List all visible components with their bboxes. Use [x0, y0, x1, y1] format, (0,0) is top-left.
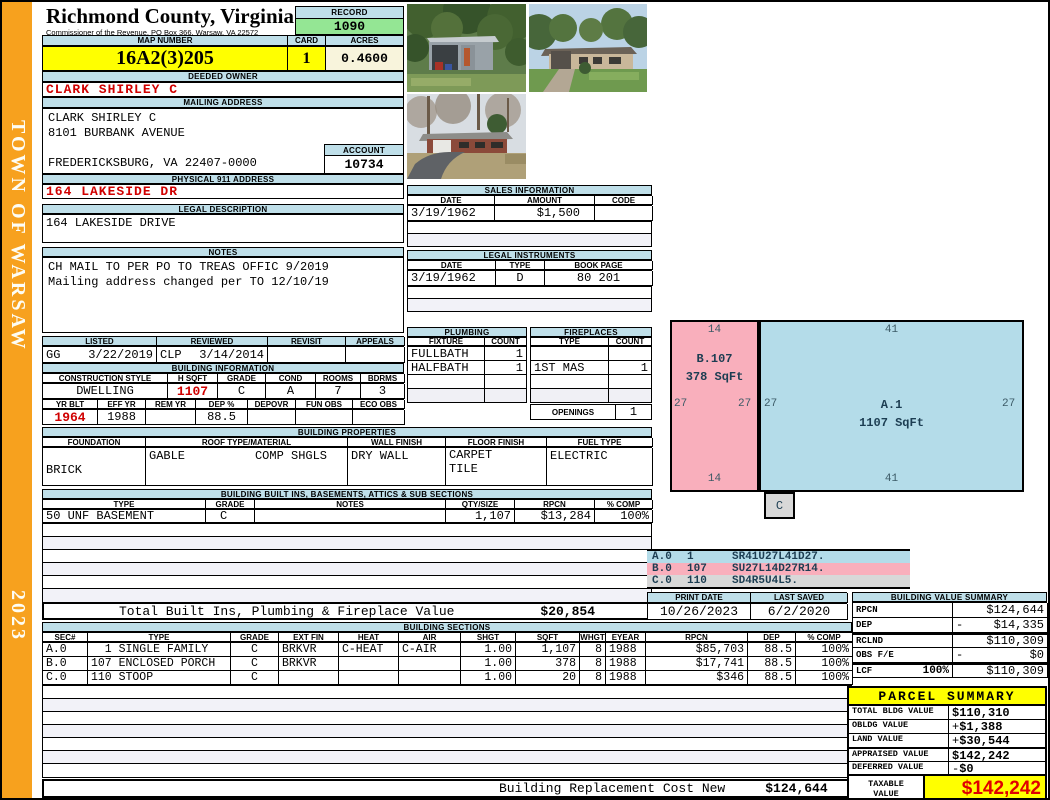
fireplace-2-count: 1 [609, 361, 652, 375]
sections-footer-row: Building Replacement Cost New $124,644 [42, 779, 852, 798]
legend-a-num: 1 [687, 551, 732, 563]
bp-header-row: FOUNDATION ROOF TYPE/MATERIAL WALL FINIS… [42, 437, 652, 447]
instruments-empty-rows [407, 286, 652, 312]
row-a-comp: 100% [796, 643, 853, 657]
reviewed-label: REVIEWED [157, 337, 268, 346]
sec-extfin-label: EXT FIN [279, 633, 339, 642]
bvs-title: BUILDING VALUE SUMMARY [852, 592, 1047, 602]
obldg-value: $1,388 [959, 720, 1002, 734]
print-date-label: PRINT DATE [648, 593, 751, 603]
note-line-1: CH MAIL TO PER PO TO TREAS OFFIC 9/2019 [45, 260, 332, 274]
town-name: TOWN OF WARSAW [6, 120, 29, 352]
card-value: 1 [288, 47, 326, 71]
row-a-sec: A.0 [43, 643, 88, 657]
row-a-dep: 88.5 [748, 643, 796, 657]
rooms-value: 7 [316, 384, 361, 399]
sketch-a-bottom-dim: 41 [759, 473, 1024, 485]
note-line-2: Mailing address changed per TO 12/10/19 [45, 275, 332, 289]
sec-whgt-label: WHGT [580, 633, 606, 642]
bvs-lcf-label-cell: LCF100% [853, 663, 953, 678]
card-label: CARD [288, 36, 326, 46]
built-ins-total-value: $20,854 [540, 604, 595, 619]
row-a-heat: C-HEAT [339, 643, 399, 657]
bvs-dep-cell: -$14,335 [953, 618, 1048, 633]
legend-c-code: C.0 [647, 575, 687, 587]
dep-pct-value: 88.5 [196, 410, 248, 425]
bvs-dep-label: DEP [853, 618, 953, 633]
openings-row: OPENINGS 1 [530, 404, 652, 420]
sec-rpcn-label: RPCN [646, 633, 748, 642]
fireplaces-title: FIREPLACES [530, 327, 652, 337]
sec-shgt-label: SHGT [461, 633, 516, 642]
bi-qty-value: 1,107 [446, 510, 515, 523]
ecoobs-value [353, 410, 405, 425]
sales-code-label: CODE [595, 196, 653, 205]
bvs-rclnd-value: $110,309 [986, 634, 1044, 648]
sec-sqft-label: SQFT [516, 633, 580, 642]
mailing-address-label: MAILING ADDRESS [42, 97, 404, 108]
row-b-type: 107 ENCLOSED PORCH [88, 657, 231, 671]
total-bldg-value: $110,310 [952, 706, 1010, 720]
sketch-a-sqft: 1107 SqFt [759, 416, 1024, 430]
inst-bookpage-label: BOOK PAGE [545, 261, 653, 270]
sketch-b-top-dim: 14 [670, 324, 759, 336]
roof-label: ROOF TYPE/MATERIAL [146, 438, 348, 447]
bvs-dep-op: - [956, 618, 963, 632]
sketch-b-label: B.107 [670, 352, 759, 366]
fireplace-1 [531, 347, 609, 361]
built-ins-total-row: Total Built Ins, Plumbing & Fireplace Va… [42, 602, 652, 620]
inst-date-label: DATE [408, 261, 496, 270]
replacement-cost-value: $124,644 [765, 781, 827, 796]
row-a-whgt: 8 [580, 643, 606, 657]
instruments-row: 3/19/1962 D 80 201 [407, 270, 652, 286]
depovr-label: DEPOVR [248, 400, 296, 409]
fixture-label: FIXTURE [408, 338, 485, 346]
row-b-grade: C [231, 657, 279, 671]
row-c-air [399, 671, 461, 685]
bi-qty-label: QTY/SIZE [446, 500, 515, 509]
account-label: ACCOUNT [324, 144, 404, 156]
review-header-row: LISTED REVIEWED REVISIT APPEALS [42, 336, 404, 346]
revisit-value [268, 347, 346, 363]
legend-row-c: C.0110SD4R5U4L5. [647, 575, 910, 587]
map-value-row: 16A2(3)205 1 0.4600 [42, 46, 404, 71]
row-c-type: 110 STOOP [88, 671, 231, 685]
bvs-lcf-value: $110,309 [986, 664, 1044, 678]
account-box: ACCOUNT 10734 [324, 144, 404, 174]
sales-amount-value: $1,500 [495, 206, 595, 221]
county-header: Richmond County, Virginia Commissioner o… [46, 4, 296, 37]
bi-type-label: TYPE [43, 500, 206, 509]
bvs-rclnd-label: RCLND [853, 633, 953, 648]
row-b-comp: 100% [796, 657, 853, 671]
listed-date: 3/22/2019 [88, 348, 153, 362]
appraised-cell: $142,242 [949, 748, 1045, 762]
bi-value-row-2: 1964 1988 88.5 [42, 409, 404, 425]
legend-a-code: A.0 [647, 551, 687, 563]
sales-code-value [595, 206, 653, 221]
bvs-obs-label: OBS F/E [853, 648, 953, 663]
row-a-air: C-AIR [399, 643, 461, 657]
building-sections-title: BUILDING SECTIONS [42, 622, 852, 632]
built-ins-empty-rows [42, 523, 652, 602]
built-ins-row: 50 UNF BASEMENT C 1,107 $13,284 100% [42, 509, 652, 523]
listed-label: LISTED [43, 337, 157, 346]
row-b-sec: B.0 [43, 657, 88, 671]
fireplace-type-label: TYPE [531, 338, 609, 346]
effyr-label: EFF YR [98, 400, 146, 409]
deferred-cell: -$0 [949, 762, 1045, 776]
sec-heat-label: HEAT [339, 633, 399, 642]
appraised-value: $142,242 [952, 749, 1010, 763]
obldg-cell: +$1,388 [949, 720, 1045, 734]
sales-amount-label: AMOUNT [495, 196, 595, 205]
row-c-grade: C [231, 671, 279, 685]
row-b-shgt: 1.00 [461, 657, 516, 671]
bvs-rpcn-label: RPCN [853, 603, 953, 618]
funobs-value [296, 410, 353, 425]
inst-date-value: 3/19/1962 [408, 271, 496, 286]
physical-address-label: PHYSICAL 911 ADDRESS [42, 174, 404, 184]
row-a-type: 1 SINGLE FAMILY [88, 643, 231, 657]
plumbing-rows: FULLBATH 1 HALFBATH 1 [407, 346, 527, 403]
parcel-summary-rows: TOTAL BLDG VALUE $110,310 OBLDG VALUE +$… [849, 706, 1045, 776]
sketch-b-bottom-dim: 14 [670, 473, 759, 485]
mailing-address-box: CLARK SHIRLEY C 8101 BURBANK AVENUE FRED… [42, 108, 404, 174]
rooms-label: ROOMS [316, 374, 361, 383]
sales-row: 3/19/1962 $1,500 [407, 205, 652, 221]
dates-header: PRINT DATE LAST SAVED [647, 592, 847, 603]
cond-label: COND [266, 374, 316, 383]
county-title: Richmond County, Virginia [46, 4, 296, 29]
town-spine: TOWN OF WARSAW 2023 [2, 2, 32, 798]
floor-finish-value: CARPETTILE [446, 448, 547, 486]
print-date-value: 10/26/2023 [648, 604, 751, 620]
bvs-obs-op: - [956, 648, 963, 662]
legend-b-num: 107 [687, 563, 732, 575]
notes-box: CH MAIL TO PER PO TO TREAS OFFIC 9/2019 … [42, 257, 404, 333]
bi-header-row-1: CONSTRUCTION STYLE H SQFT GRADE COND ROO… [42, 373, 404, 383]
depovr-value [248, 410, 296, 425]
map-number-value: 16A2(3)205 [43, 47, 288, 71]
sections-rows: A.0 1 SINGLE FAMILY C BRKVR C-HEAT C-AIR… [42, 642, 852, 685]
floor-finish-1: CARPET [449, 448, 492, 462]
sales-title: SALES INFORMATION [407, 185, 652, 195]
property-record-card: TOWN OF WARSAW 2023 Richmond County, Vir… [0, 0, 1050, 800]
dates-values: 10/26/2023 6/2/2020 [647, 603, 847, 620]
effyr-value: 1988 [98, 410, 146, 425]
tax-year: 2023 [6, 590, 29, 642]
map-number-label: MAP NUMBER [43, 36, 288, 46]
land-cell: +$30,544 [949, 734, 1045, 748]
row-c-rpcn: $346 [646, 671, 748, 685]
taxable-label: TAXABLE VALUE [849, 776, 925, 800]
bdrms-value: 3 [361, 384, 405, 399]
row-a-sqft: 1,107 [516, 643, 580, 657]
building-properties-title: BUILDING PROPERTIES [42, 427, 652, 437]
sketch-a-top-dim: 41 [759, 324, 1024, 336]
revisit-label: REVISIT [268, 337, 346, 346]
sec-air-label: AIR [399, 633, 461, 642]
mailing-line-1: CLARK SHIRLEY C [45, 111, 159, 125]
row-c-dep: 88.5 [748, 671, 796, 685]
bi-comp-value: 100% [595, 510, 653, 523]
row-c-whgt: 8 [580, 671, 606, 685]
last-saved-value: 6/2/2020 [751, 604, 848, 620]
sec-grade-label: GRADE [231, 633, 279, 642]
row-b-heat [339, 657, 399, 671]
fireplace-count-label: COUNT [609, 338, 652, 346]
plumbing-title: PLUMBING [407, 327, 527, 337]
grade-value: C [218, 384, 266, 399]
legend-row-b: B.0107SU27L14D27R14. [647, 563, 910, 575]
total-bldg-label: TOTAL BLDG VALUE [849, 706, 949, 720]
row-a-extfin: BRKVR [279, 643, 339, 657]
taxable-row: TAXABLE VALUE $142,242 [849, 776, 1045, 800]
house-front-photo [529, 4, 647, 92]
row-c-shgt: 1.00 [461, 671, 516, 685]
plumbing-count-label: COUNT [485, 338, 527, 346]
appeals-value [346, 347, 405, 363]
funobs-label: FUN OBS [296, 400, 353, 409]
total-bldg-cell: $110,310 [949, 706, 1045, 720]
record-value: 1090 [295, 19, 404, 35]
remyr-value [146, 410, 196, 425]
deeded-owner-label: DEEDED OWNER [42, 71, 404, 82]
openings-value: 1 [616, 405, 652, 420]
record-box: RECORD 1090 [295, 6, 404, 35]
bi-comp-label: % COMP [595, 500, 653, 509]
remyr-label: REM YR [146, 400, 196, 409]
reviewed-code: CLP [160, 348, 182, 362]
row-b-rpcn: $17,741 [646, 657, 748, 671]
bvs-rclnd-cell: $110,309 [953, 633, 1048, 648]
row-c-sec: C.0 [43, 671, 88, 685]
bvs-lcf-pct: 100% [923, 665, 949, 677]
bp-value-row: BRICK GABLECOMP SHGLS DRY WALL CARPETTIL… [42, 447, 652, 486]
instruments-title: LEGAL INSTRUMENTS [407, 250, 652, 260]
floor-finish-2: TILE [449, 462, 478, 476]
bi-notes-value [255, 510, 446, 523]
obldg-label: OBLDG VALUE [849, 720, 949, 734]
built-ins-title: BUILDING BUILT INS, BASEMENTS, ATTICS & … [42, 489, 652, 499]
foundation-value: BRICK [43, 448, 146, 486]
sketch-a-right-dim: 27 [1002, 398, 1015, 410]
land-value: $30,544 [959, 734, 1009, 748]
ecoobs-label: ECO OBS [353, 400, 405, 409]
sec-eyear-label: EYEAR [606, 633, 646, 642]
building-information-title: BUILDING INFORMATION [42, 363, 404, 373]
bi-grade-label: GRADE [206, 500, 255, 509]
bi-value-row-1: DWELLING 1107 C A 7 3 [42, 383, 404, 399]
fireplace-2: 1ST MAS [531, 361, 609, 375]
built-ins-total-label: Total Built Ins, Plumbing & Fireplace Va… [119, 604, 454, 619]
sales-header: DATE AMOUNT CODE [407, 195, 652, 205]
cond-value: A [266, 384, 316, 399]
shed-photo [407, 4, 526, 92]
legend-row-a: A.01SR41U27L41D27. [647, 551, 910, 563]
legal-description-value: 164 LAKESIDE DRIVE [43, 215, 403, 230]
roof-material-value: COMP SHGLS [255, 449, 327, 463]
reviewed-date: 3/14/2014 [199, 348, 264, 362]
wall-finish-value: DRY WALL [348, 448, 446, 486]
sketch-a-label: A.1 [759, 398, 1024, 412]
floor-finish-label: FLOOR FINISH [446, 438, 547, 447]
bi-rpcn-label: RPCN [515, 500, 595, 509]
replacement-cost-label: Building Replacement Cost New [499, 781, 725, 796]
hsqft-value: 1107 [168, 384, 218, 399]
sections-header: SEC# TYPE GRADE EXT FIN HEAT AIR SHGT SQ… [42, 632, 852, 642]
bvs-table: RPCN $124,644 DEP -$14,335 RCLND $110,30… [852, 602, 1047, 678]
fuel-type-label: FUEL TYPE [547, 438, 653, 447]
legend-c-num: 110 [687, 575, 732, 587]
parcel-summary-title: PARCEL SUMMARY [849, 688, 1045, 706]
row-a-grade: C [231, 643, 279, 657]
acres-value: 0.4600 [326, 47, 404, 71]
deferred-label: DEFERRED VALUE [849, 762, 949, 776]
bi-grade-value: C [206, 510, 255, 523]
instruments-header: DATE TYPE BOOK PAGE [407, 260, 652, 270]
bvs-rpcn-cell: $124,644 [953, 603, 1048, 618]
legend-b-path: SU27L14D27R14. [732, 563, 824, 575]
plumbing-header: FIXTURE COUNT [407, 337, 527, 346]
sketch-b-left-dim: 27 [674, 398, 687, 410]
fixture-1-count: 1 [485, 347, 527, 361]
wall-finish-label: WALL FINISH [348, 438, 446, 447]
deeded-owner-value: CLARK SHIRLEY C [42, 82, 404, 97]
bi-header-row-2: YR BLT EFF YR REM YR DEP % DEPOVR FUN OB… [42, 399, 404, 409]
bi-notes-label: NOTES [255, 500, 446, 509]
last-saved-label: LAST SAVED [751, 593, 848, 603]
sales-empty-rows [407, 221, 652, 247]
bdrms-label: BDRMS [361, 374, 405, 383]
fuel-type-value: ELECTRIC [547, 448, 653, 486]
row-a-eyear: 1988 [606, 643, 646, 657]
account-value: 10734 [324, 156, 404, 174]
row-a-shgt: 1.00 [461, 643, 516, 657]
row-c-extfin [279, 671, 339, 685]
bi-rpcn-value: $13,284 [515, 510, 595, 523]
listed-value: GG3/22/2019 [43, 347, 157, 363]
legend-b-code: B.0 [647, 563, 687, 575]
sales-date-label: DATE [408, 196, 495, 205]
row-c-heat [339, 671, 399, 685]
roof-value: GABLECOMP SHGLS [146, 448, 348, 486]
mailing-line-3: FREDERICKSBURG, VA 22407-0000 [45, 156, 260, 170]
legal-description-label: LEGAL DESCRIPTION [42, 204, 404, 214]
row-b-eyear: 1988 [606, 657, 646, 671]
sketch-b-sqft: 378 SqFt [670, 370, 759, 384]
fixture-2: HALFBATH [408, 361, 485, 375]
taxable-label-2: VALUE [873, 789, 899, 799]
sketch-section-c: C [764, 492, 795, 519]
built-ins-header: TYPE GRADE NOTES QTY/SIZE RPCN % COMP [42, 499, 652, 509]
bvs-dep-value: $14,335 [994, 618, 1044, 632]
sec-type-label: TYPE [88, 633, 231, 642]
parcel-summary: PARCEL SUMMARY TOTAL BLDG VALUE $110,310… [847, 686, 1047, 800]
appeals-label: APPEALS [346, 337, 405, 346]
bvs-obs-cell: -$0 [953, 648, 1048, 663]
reviewed-value: CLP3/14/2014 [157, 347, 268, 363]
physical-address-value: 164 LAKESIDE DR [42, 184, 404, 199]
row-c-sqft: 20 [516, 671, 580, 685]
legend-c-path: SD4R5U4L5. [732, 575, 798, 587]
grade-label: GRADE [218, 374, 266, 383]
legal-description-box: 164 LAKESIDE DRIVE [42, 214, 404, 243]
fireplaces-rows: 1ST MAS 1 [530, 346, 652, 403]
inst-type-label: TYPE [496, 261, 545, 270]
bvs-obs-value: $0 [1030, 648, 1044, 662]
bvs-rpcn-value: $124,644 [986, 603, 1044, 617]
row-c-comp: 100% [796, 671, 853, 685]
construction-style-value: DWELLING [43, 384, 168, 399]
appraised-label: APPRAISED VALUE [849, 748, 949, 762]
listed-code: GG [46, 348, 60, 362]
row-b-extfin: BRKVR [279, 657, 339, 671]
row-b-sqft: 378 [516, 657, 580, 671]
sketch-a-left-dim: 27 [764, 398, 777, 410]
inst-bookpage-value: 80 201 [545, 271, 653, 286]
inst-type-value: D [496, 271, 545, 286]
map-header-row: MAP NUMBER CARD ACRES [42, 35, 404, 46]
record-label: RECORD [295, 6, 404, 19]
bvs-lcf-cell: $110,309 [953, 663, 1048, 678]
hsqft-label: H SQFT [168, 374, 218, 383]
openings-label: OPENINGS [531, 405, 616, 420]
row-b-air [399, 657, 461, 671]
roof-type-value: GABLE [149, 449, 185, 463]
fixture-2-count: 1 [485, 361, 527, 375]
review-value-row: GG3/22/2019 CLP3/14/2014 [42, 346, 404, 363]
sketch-legend: A.01SR41U27L41D27. B.0107SU27L14D27R14. … [647, 549, 910, 589]
sales-date-value: 3/19/1962 [408, 206, 495, 221]
row-c-eyear: 1988 [606, 671, 646, 685]
bi-type-value: 50 UNF BASEMENT [43, 510, 206, 523]
taxable-value: $142,242 [925, 776, 1045, 800]
yrblt-value: 1964 [43, 410, 98, 425]
fireplaces-header: TYPE COUNT [530, 337, 652, 346]
fixture-1: FULLBATH [408, 347, 485, 361]
notes-label: NOTES [42, 247, 404, 257]
yrblt-label: YR BLT [43, 400, 98, 409]
sketch-b-right-dim: 27 [738, 398, 751, 410]
sec-comp-label: % COMP [796, 633, 853, 642]
deferred-value: $0 [959, 762, 973, 776]
row-b-whgt: 8 [580, 657, 606, 671]
row-a-rpcn: $85,703 [646, 643, 748, 657]
mailing-line-2: 8101 BURBANK AVENUE [45, 126, 188, 140]
land-label: LAND VALUE [849, 734, 949, 748]
bvs-lcf-label: LCF [856, 666, 872, 676]
house-driveway-photo [407, 94, 526, 179]
legend-a-path: SR41U27L41D27. [732, 551, 824, 563]
fireplace-1-count [609, 347, 652, 361]
row-b-dep: 88.5 [748, 657, 796, 671]
construction-style-label: CONSTRUCTION STYLE [43, 374, 168, 383]
acres-label: ACRES [326, 36, 404, 46]
dep-pct-label: DEP % [196, 400, 248, 409]
taxable-label-1: TAXABLE [868, 779, 904, 789]
sec-dep-label: DEP [748, 633, 796, 642]
sections-empty-rows [42, 685, 852, 778]
foundation-label: FOUNDATION [43, 438, 146, 447]
sec-num-label: SEC# [43, 633, 88, 642]
